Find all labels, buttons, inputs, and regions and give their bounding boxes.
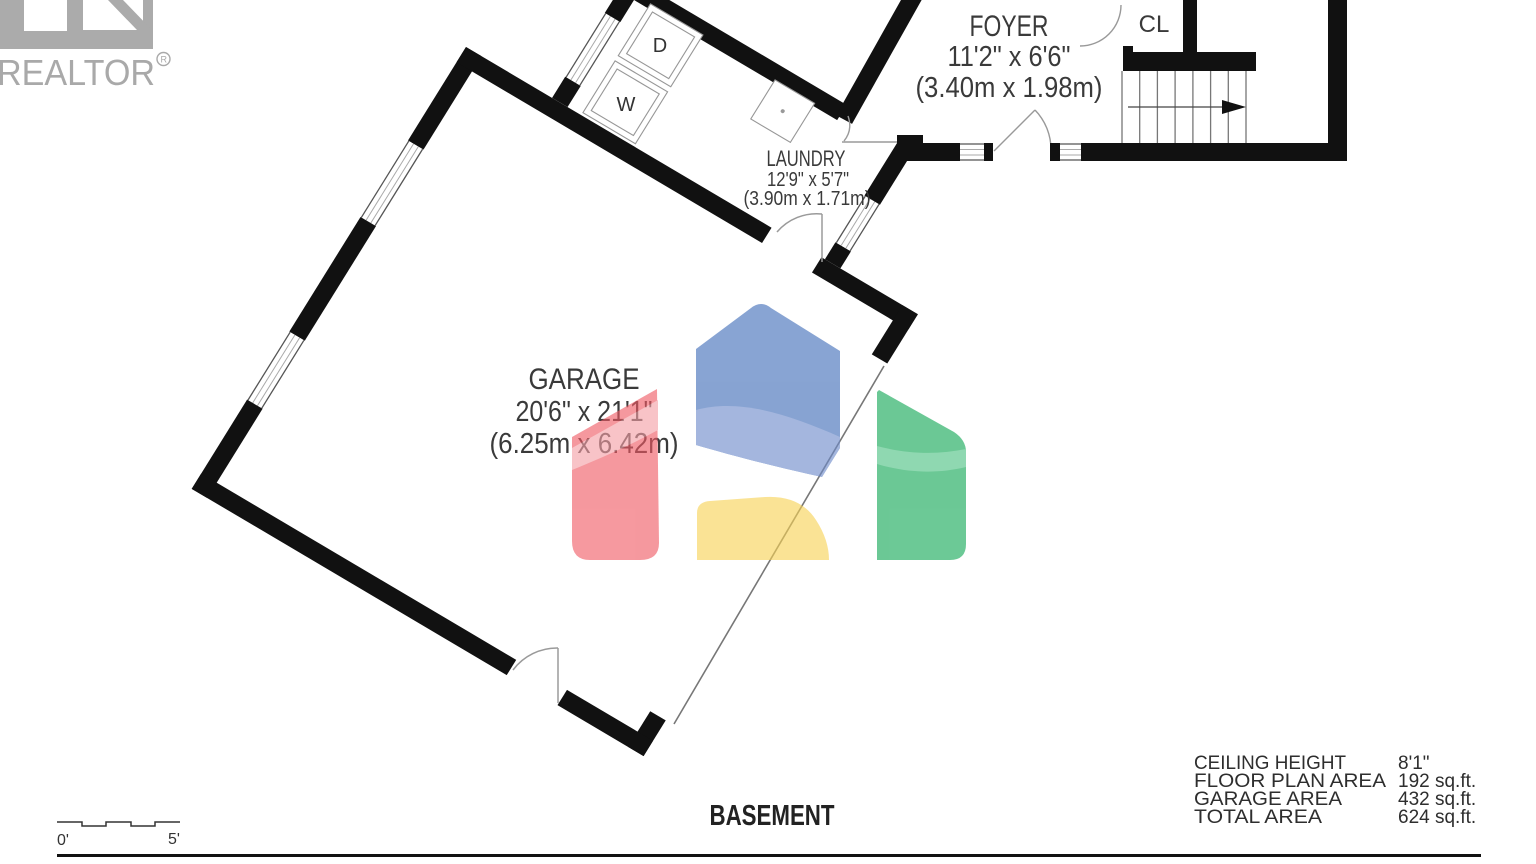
svg-text:BASEMENT: BASEMENT (710, 800, 835, 832)
svg-text:5': 5' (168, 831, 180, 848)
svg-text:GARAGE: GARAGE (529, 363, 640, 396)
svg-text:FOYER: FOYER (970, 10, 1049, 43)
svg-text:W: W (617, 94, 636, 116)
svg-text:(3.90m x 1.71m): (3.90m x 1.71m) (744, 188, 871, 210)
svg-text:LAUNDRY: LAUNDRY (767, 146, 846, 171)
svg-text:R: R (161, 55, 168, 65)
svg-text:D: D (653, 35, 667, 57)
svg-text:CL: CL (1139, 11, 1170, 38)
svg-text:TOTAL AREA: TOTAL AREA (1194, 807, 1322, 828)
svg-text:(3.40m x 1.98m): (3.40m x 1.98m) (916, 72, 1103, 104)
svg-text:11'2" x 6'6": 11'2" x 6'6" (948, 41, 1071, 73)
svg-text:0': 0' (57, 832, 69, 849)
svg-text:REALTOR: REALTOR (0, 52, 155, 93)
svg-text:624 sq.ft.: 624 sq.ft. (1398, 807, 1476, 828)
